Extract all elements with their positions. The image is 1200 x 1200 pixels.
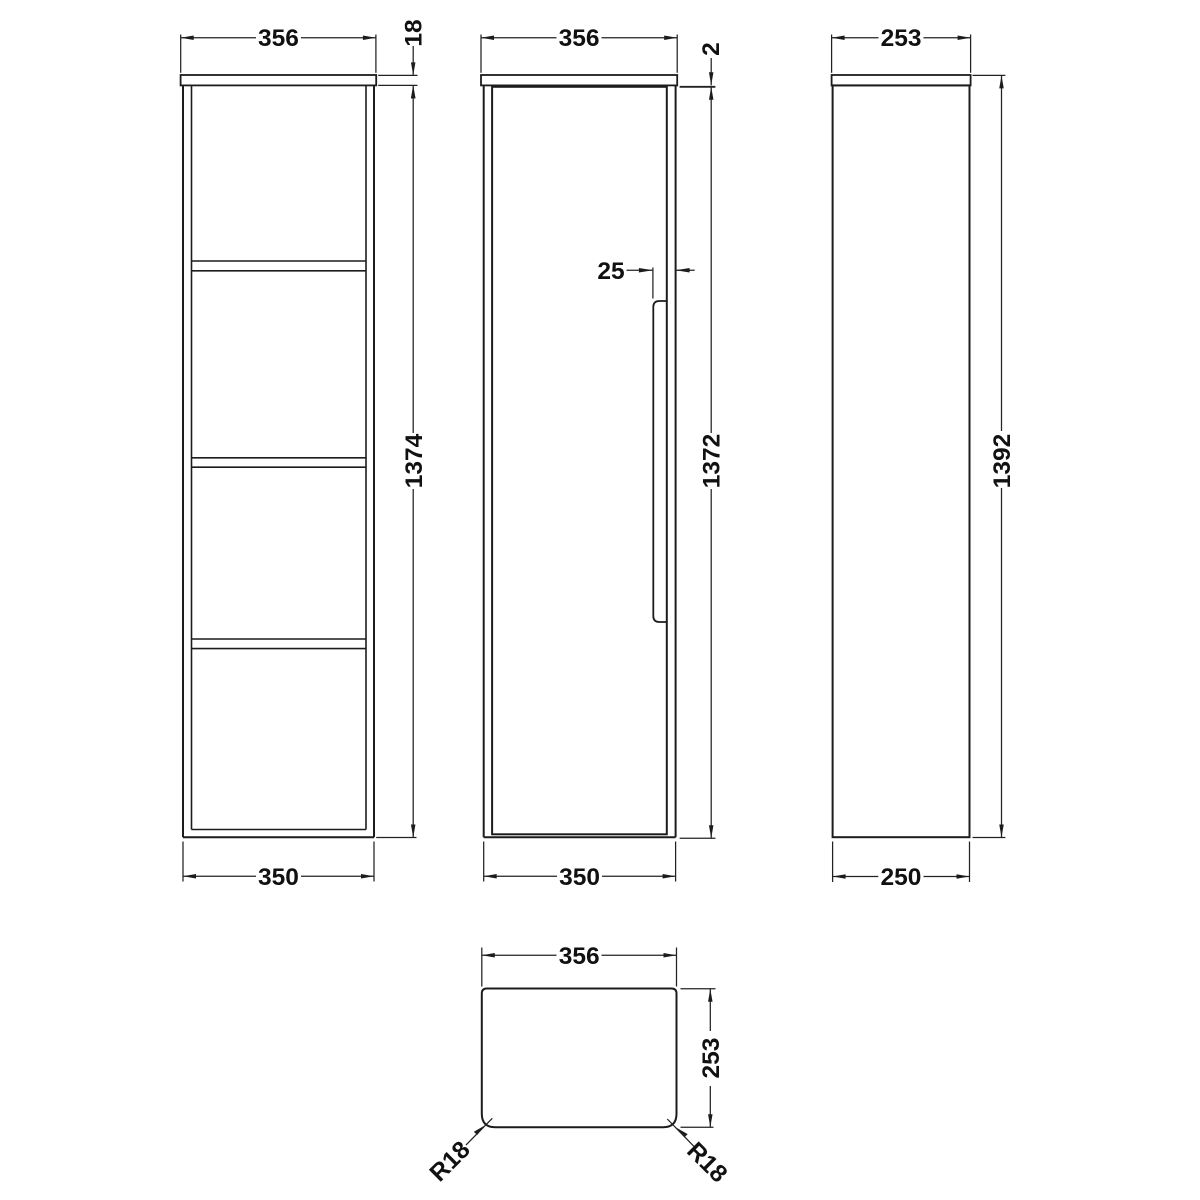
svg-text:2: 2 bbox=[698, 42, 725, 56]
svg-text:253: 253 bbox=[698, 1038, 725, 1079]
svg-text:250: 250 bbox=[880, 864, 921, 891]
svg-text:1392: 1392 bbox=[989, 434, 1016, 489]
svg-text:253: 253 bbox=[881, 25, 922, 52]
svg-text:350: 350 bbox=[258, 864, 299, 891]
svg-text:1374: 1374 bbox=[401, 433, 428, 488]
svg-text:1372: 1372 bbox=[699, 434, 726, 489]
svg-text:25: 25 bbox=[597, 258, 624, 285]
svg-text:356: 356 bbox=[559, 25, 600, 52]
svg-text:350: 350 bbox=[559, 864, 600, 891]
svg-text:356: 356 bbox=[258, 25, 299, 52]
svg-text:18: 18 bbox=[401, 19, 428, 46]
svg-text:356: 356 bbox=[559, 943, 600, 970]
